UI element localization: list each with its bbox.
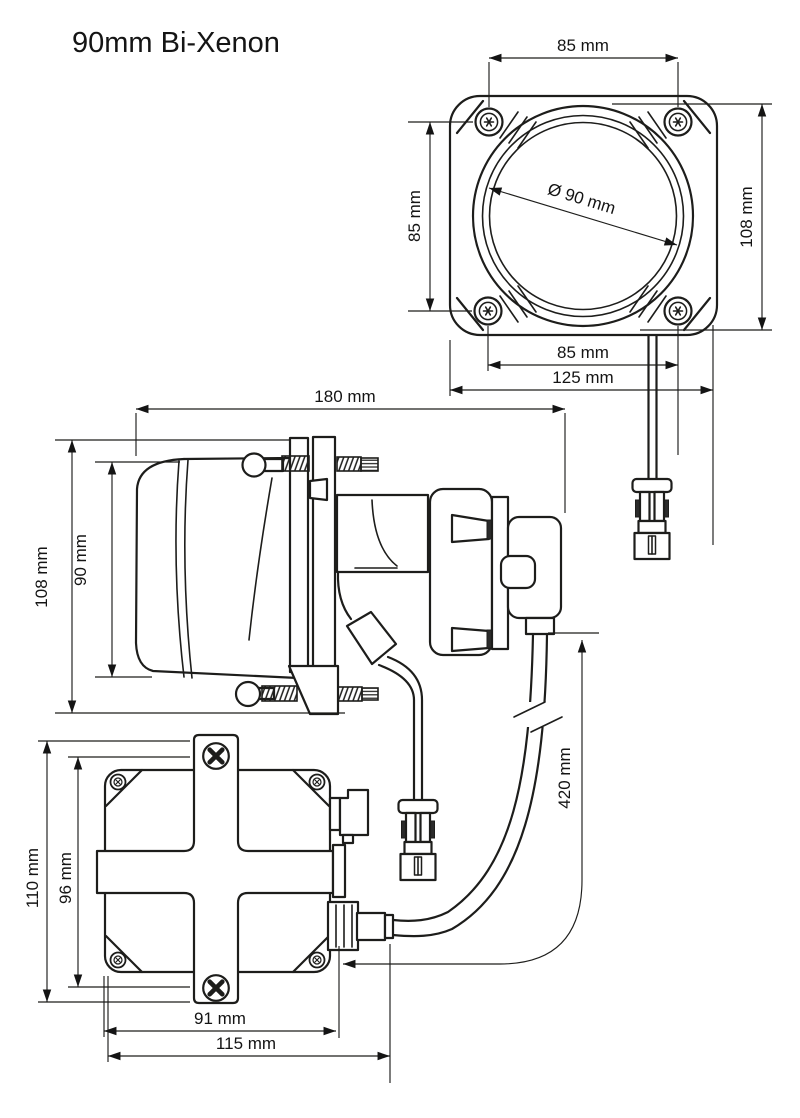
housing-lower-edge	[338, 572, 351, 619]
ballast-screw-icon	[111, 775, 126, 790]
mount-screw-icon	[475, 298, 502, 325]
dim-label: 420 mm	[555, 747, 574, 808]
retaining-clip	[452, 515, 489, 542]
lens-seam	[185, 460, 192, 678]
dim-label: 85 mm	[557, 343, 609, 362]
rear-housing	[337, 495, 428, 572]
ballast-cable-connector	[328, 902, 393, 950]
ballast-screw-icon	[310, 775, 325, 790]
mount-screw-icon	[665, 298, 692, 325]
dim-label: 115 mm	[216, 1034, 276, 1053]
dim-label: 90 mm	[71, 534, 90, 586]
bracket-plate-rear	[313, 437, 335, 672]
ballast-screw-icon	[310, 953, 325, 968]
bottom-adjuster-stud	[236, 682, 297, 706]
power-cable	[379, 665, 414, 800]
dim-label: 125 mm	[552, 368, 613, 387]
dim-label: 108 mm	[737, 186, 756, 247]
mount-screw-icon	[665, 109, 692, 136]
mount-screw-icon	[476, 109, 503, 136]
front-plug	[633, 479, 672, 559]
igniter-cable-gland	[526, 618, 554, 634]
dim-label: 180 mm	[314, 387, 375, 406]
ballast-view	[97, 735, 368, 1003]
top-adjuster-stud	[243, 454, 379, 477]
retaining-clip	[452, 628, 489, 651]
dim-label: 110 mm	[23, 848, 42, 908]
bracket-hole	[310, 479, 327, 500]
lens-barrel-curve	[249, 478, 272, 640]
dim-label: 96 mm	[56, 852, 75, 904]
cross-screw-icon	[203, 743, 229, 769]
dim-label: 85 mm	[405, 190, 424, 242]
power-cable	[388, 657, 422, 800]
drawing-page: 90mm Bi-Xenon	[0, 0, 800, 1118]
adjuster-ball	[236, 682, 260, 706]
ballast-screw-icon	[111, 953, 126, 968]
lens-outline	[136, 459, 298, 678]
technical-drawing: 90mm Bi-Xenon	[0, 0, 800, 1118]
dim-side-body-height: 90 mm	[71, 462, 180, 677]
dim-label: 108 mm	[32, 546, 51, 607]
dim-label: 91 mm	[194, 1009, 246, 1028]
cross-screw-icon	[203, 975, 229, 1001]
dim-label: 85 mm	[557, 36, 609, 55]
cross-end-plate	[333, 845, 345, 897]
adjuster-ball	[243, 454, 266, 477]
page-title: 90mm Bi-Xenon	[72, 27, 280, 59]
front-view: Ø 90 mm 85 mm 85 mm 108 mm	[405, 36, 772, 559]
power-plug	[399, 800, 438, 880]
lens-seam	[176, 461, 184, 677]
igniter-notch	[501, 556, 535, 588]
ballast-output-connector	[330, 790, 368, 843]
bracket-plate-front	[290, 438, 308, 672]
